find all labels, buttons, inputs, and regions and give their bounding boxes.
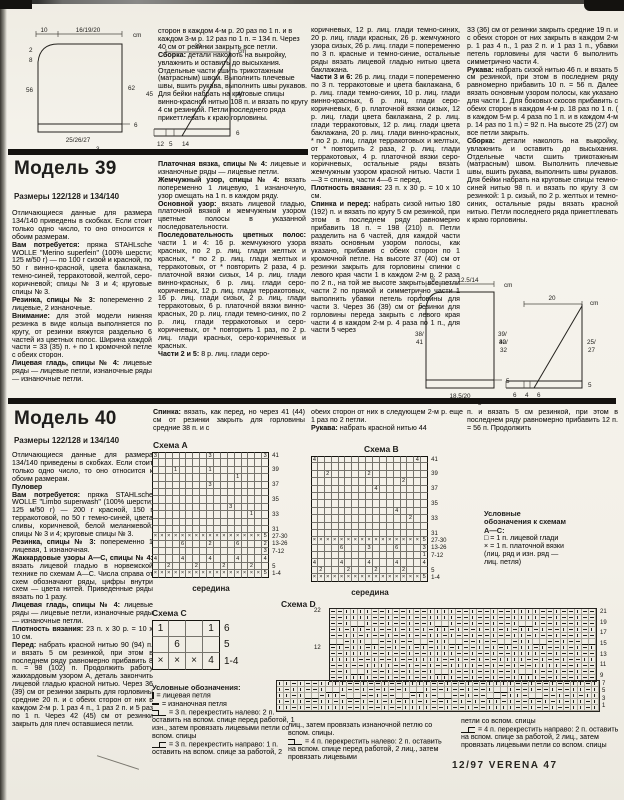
chart-cell bbox=[380, 463, 387, 470]
chart-row: 2 bbox=[311, 478, 447, 485]
chart-cell: × bbox=[339, 574, 346, 581]
row-label: 5 bbox=[602, 688, 605, 694]
chart-cell: 1 bbox=[152, 620, 169, 637]
model40-column-1: Отличающиеся данные для размера 134/140 … bbox=[12, 452, 153, 786]
model40-column-2-intro: Спинка: вязать, как перед, но через 41 (… bbox=[153, 409, 305, 436]
chart-cell bbox=[235, 482, 242, 489]
sym-purl-icon bbox=[152, 703, 159, 705]
chart-row bbox=[152, 489, 288, 496]
chart-cell bbox=[159, 548, 166, 555]
cable-cell bbox=[417, 705, 424, 711]
chart-cell bbox=[262, 511, 269, 518]
chart-cell: × bbox=[318, 574, 325, 581]
chart-cell bbox=[242, 459, 249, 466]
chart-cell bbox=[235, 452, 242, 459]
cable-cell bbox=[592, 705, 599, 711]
chart-cell bbox=[394, 523, 401, 530]
chart-cell bbox=[207, 489, 214, 496]
chart-cell bbox=[242, 467, 249, 474]
chart-cell: × bbox=[166, 533, 173, 540]
row-label bbox=[428, 508, 431, 515]
chart-cell: × bbox=[366, 574, 373, 581]
legend-symbols-col2: = лицевая петля= изнаночная петля= 3 п. … bbox=[152, 692, 304, 756]
chart-cell bbox=[221, 452, 228, 459]
chart-cell bbox=[180, 452, 187, 459]
chart-cell bbox=[228, 563, 235, 570]
chart-cell bbox=[207, 511, 214, 518]
chart-cell bbox=[228, 548, 235, 555]
chart-cell bbox=[414, 567, 421, 574]
chart-cell: × bbox=[169, 653, 186, 670]
paragraph: Жемчужный узор, спицы № 4: вязать попере… bbox=[158, 177, 306, 201]
chart-cell bbox=[262, 482, 269, 489]
paragraph: обеих сторон от них в следующем 2-м р. е… bbox=[311, 409, 463, 425]
chart-cell bbox=[262, 563, 269, 570]
chart-row: 17-12 bbox=[311, 552, 447, 559]
paragraph: п. и вязать 5 см резинкой, при этом в по… bbox=[467, 409, 618, 433]
chart-cell bbox=[401, 471, 408, 478]
chart-cell bbox=[352, 545, 359, 552]
chart-cell bbox=[352, 559, 359, 566]
chart-cell bbox=[235, 511, 242, 518]
cable-cell bbox=[319, 705, 326, 711]
chart-cell: × bbox=[332, 537, 339, 544]
chart-a-caption: середина bbox=[152, 584, 270, 593]
paragraph: × = 1 п. платочной вязки (лиц. ряд и изн… bbox=[484, 543, 568, 567]
chart-cell bbox=[186, 474, 193, 481]
chart-cell: × bbox=[345, 537, 352, 544]
chart-cell bbox=[248, 452, 255, 459]
row-label bbox=[428, 523, 431, 530]
chart-cell bbox=[200, 459, 207, 466]
chart-cell: 2 bbox=[345, 567, 352, 574]
chart-cell bbox=[359, 493, 366, 500]
chart-row: 437 bbox=[311, 486, 447, 493]
chart-cell bbox=[359, 456, 366, 463]
chart-row: ×××41-4 bbox=[152, 653, 238, 670]
chart-cell bbox=[255, 504, 262, 511]
cable-row bbox=[277, 705, 599, 711]
chart-cell bbox=[166, 452, 173, 459]
paragraph: = 4 п. перекрестить направо: 2 п. остави… bbox=[461, 726, 619, 750]
chart-cell: × bbox=[366, 537, 373, 544]
chart-cell bbox=[339, 471, 346, 478]
chart-cell bbox=[414, 545, 421, 552]
chart-cell bbox=[373, 523, 380, 530]
model39-sizes: Размеры 122/128 и 134/140 bbox=[14, 192, 119, 201]
chart-cell bbox=[186, 526, 193, 533]
chart-a-title: Схема A bbox=[153, 440, 188, 450]
paragraph: = 3 п. перекрестить направо: 1 п. остави… bbox=[152, 741, 304, 757]
chart-cell: 2 bbox=[193, 563, 200, 570]
chart-cell bbox=[186, 496, 193, 503]
chart-cell bbox=[345, 478, 352, 485]
chart-row bbox=[152, 519, 288, 526]
chart-cell bbox=[380, 493, 387, 500]
chart-cell bbox=[311, 493, 318, 500]
chart-cell bbox=[311, 530, 318, 537]
chart-cell bbox=[193, 474, 200, 481]
chart-cell bbox=[407, 500, 414, 507]
chart-cell bbox=[186, 459, 193, 466]
paragraph-lead: Основной узор: bbox=[158, 200, 217, 208]
chart-cell bbox=[359, 478, 366, 485]
chart-cell: × bbox=[401, 537, 408, 544]
chart-cell: 3 bbox=[262, 548, 269, 555]
chart-cell bbox=[407, 471, 414, 478]
chart-cell bbox=[207, 548, 214, 555]
chart-cell bbox=[318, 515, 325, 522]
chart-cell bbox=[380, 471, 387, 478]
chart-cell bbox=[180, 548, 187, 555]
chart-cell bbox=[421, 523, 428, 530]
chart-cell bbox=[242, 526, 249, 533]
chart-cell bbox=[380, 552, 387, 559]
chart-cell bbox=[200, 467, 207, 474]
chart-cell bbox=[359, 523, 366, 530]
chart-cell bbox=[262, 496, 269, 503]
row-label: 1-4 bbox=[428, 574, 440, 581]
chart-row bbox=[311, 493, 447, 500]
chart-cell bbox=[352, 456, 359, 463]
chart-d-title: Схема D bbox=[281, 599, 316, 609]
paragraph: Основной узор: вязать лицевой гладью, пл… bbox=[158, 201, 306, 233]
cable-cell bbox=[312, 705, 319, 711]
chart-cell bbox=[166, 467, 173, 474]
chart-cell bbox=[318, 471, 325, 478]
paragraph-lead: Внимание: bbox=[12, 312, 50, 320]
chart-cell: × bbox=[214, 533, 221, 540]
chart-cell bbox=[359, 515, 366, 522]
chart-cell bbox=[262, 519, 269, 526]
chart-cell: 5 bbox=[421, 537, 428, 544]
chart-cell bbox=[373, 456, 380, 463]
dim-label: 38/ bbox=[415, 331, 424, 338]
chart-cell bbox=[214, 489, 221, 496]
chart-cell bbox=[352, 567, 359, 574]
chart-cell: × bbox=[387, 574, 394, 581]
paragraph: Части 3 и 6: 26 р. лиц. глади = попереме… bbox=[311, 74, 460, 185]
row-label: 9 bbox=[600, 673, 607, 679]
chart-cell bbox=[166, 555, 173, 562]
chart-cell bbox=[380, 456, 387, 463]
chart-cell: × bbox=[173, 533, 180, 540]
chart-cell bbox=[407, 523, 414, 530]
chart-row: 35 bbox=[311, 500, 447, 507]
row-label: 41 bbox=[269, 452, 279, 459]
chart-cell bbox=[262, 504, 269, 511]
chart-cell bbox=[180, 526, 187, 533]
chart-cell bbox=[414, 559, 421, 566]
row-label: 13 bbox=[600, 652, 607, 658]
chart-cell bbox=[186, 489, 193, 496]
paragraph-lead: Сборка: bbox=[467, 137, 495, 145]
chart-cell bbox=[248, 548, 255, 555]
page-footer: 12/97 VERENA 47 bbox=[452, 760, 558, 771]
chart-cell: × bbox=[221, 570, 228, 577]
chart-cell: × bbox=[248, 570, 255, 577]
row-label: 6 bbox=[220, 620, 230, 637]
chart-cell bbox=[311, 523, 318, 530]
chart-row: 4 bbox=[311, 508, 447, 515]
chart-d-upper-grid bbox=[330, 609, 596, 681]
chart-cell bbox=[255, 563, 262, 570]
chart-cell bbox=[235, 563, 242, 570]
chart-cell bbox=[401, 508, 408, 515]
chart-cell bbox=[311, 486, 318, 493]
chart-cell bbox=[214, 555, 221, 562]
chart-row: 636313-26 bbox=[311, 545, 447, 552]
chart-cell bbox=[228, 511, 235, 518]
chart-cell bbox=[373, 559, 380, 566]
chart-cell: × bbox=[387, 537, 394, 544]
row-label: 3 bbox=[602, 696, 605, 702]
chart-cell bbox=[242, 474, 249, 481]
chart-cell: × bbox=[325, 537, 332, 544]
chart-cell bbox=[387, 456, 394, 463]
cable-cell bbox=[326, 705, 333, 711]
chart-cell bbox=[352, 508, 359, 515]
dim-label: 5 bbox=[419, 303, 423, 310]
row-label: 11 bbox=[600, 662, 607, 668]
chart-cell bbox=[186, 555, 193, 562]
row-label: 37 bbox=[269, 482, 279, 489]
chart-cell bbox=[248, 474, 255, 481]
chart-cell bbox=[359, 471, 366, 478]
chart-cell bbox=[173, 482, 180, 489]
chart-cell bbox=[221, 474, 228, 481]
model39-column-4: 33 (36) см от резинки закрыть средние 19… bbox=[467, 27, 618, 273]
chart-cell bbox=[221, 459, 228, 466]
chart-cell bbox=[421, 471, 428, 478]
chart-cell bbox=[242, 563, 249, 570]
paragraph-lead: Платочная вязка, спицы № 4: bbox=[158, 161, 267, 168]
chart-cell bbox=[407, 559, 414, 566]
chart-cell bbox=[339, 478, 346, 485]
chart-cell bbox=[421, 567, 428, 574]
section-rule bbox=[8, 149, 308, 155]
dim-label: 32 bbox=[500, 347, 508, 354]
chart-cell bbox=[235, 467, 242, 474]
chart-cell bbox=[387, 508, 394, 515]
chart-cell: 1 bbox=[421, 552, 428, 559]
chart-cell bbox=[214, 504, 221, 511]
chart-row: 22225 bbox=[311, 567, 447, 574]
chart-cell bbox=[421, 500, 428, 507]
chart-cell bbox=[401, 486, 408, 493]
chart-cell bbox=[366, 463, 373, 470]
dim-label: 2 bbox=[29, 47, 33, 54]
row-label: 1 bbox=[602, 703, 605, 709]
chart-cell bbox=[339, 500, 346, 507]
chart-cell bbox=[193, 555, 200, 562]
chart-cell bbox=[255, 459, 262, 466]
paragraph: = 4 п. перекрестить налево: 2 п. оставит… bbox=[288, 738, 450, 762]
chart-cell: 5 bbox=[421, 574, 428, 581]
chart-cell bbox=[166, 474, 173, 481]
chart-cell bbox=[359, 552, 366, 559]
chart-cell bbox=[318, 552, 325, 559]
chart-cell bbox=[235, 489, 242, 496]
row-label bbox=[269, 504, 272, 511]
chart-cell bbox=[200, 511, 207, 518]
chart-cell bbox=[414, 515, 421, 522]
paragraph-lead: Рукава: bbox=[311, 424, 338, 432]
chart-cell: × bbox=[380, 574, 387, 581]
cable-cell bbox=[466, 705, 473, 711]
row-label: 5 bbox=[220, 637, 230, 654]
chart-cell bbox=[173, 563, 180, 570]
chart-cell bbox=[203, 637, 220, 654]
chart-cell bbox=[414, 471, 421, 478]
chart-cell bbox=[325, 545, 332, 552]
chart-cell bbox=[193, 482, 200, 489]
chart-cell bbox=[193, 489, 200, 496]
cable-cell bbox=[508, 705, 515, 711]
paragraph: Спинка: вязать, как перед, но через 41 (… bbox=[153, 409, 305, 433]
chart-cell bbox=[401, 559, 408, 566]
row-label bbox=[269, 555, 272, 562]
chart-cell bbox=[255, 511, 262, 518]
chart-cell bbox=[200, 519, 207, 526]
chart-cell: × bbox=[318, 537, 325, 544]
cable-cell bbox=[543, 705, 550, 711]
chart-row: 22225 bbox=[152, 563, 288, 570]
chart-cell bbox=[152, 489, 159, 496]
paragraph: Лицевая гладь, спицы № 4: лицевые ряды —… bbox=[12, 602, 153, 626]
chart-cell: 4 bbox=[311, 456, 318, 463]
model39-column-1: Отличающиеся данные для размера 134/140 … bbox=[12, 210, 152, 396]
chart-cell: × bbox=[159, 533, 166, 540]
paragraph-lead: Пуловер bbox=[12, 483, 42, 491]
chart-cell: 4 bbox=[207, 555, 214, 562]
legend-abc-title: Условные обозначения к схемам А—С: bbox=[484, 510, 568, 535]
row-label bbox=[269, 489, 272, 496]
chart-cell bbox=[352, 478, 359, 485]
chart-cell bbox=[401, 545, 408, 552]
chart-cell bbox=[248, 482, 255, 489]
chart-cell bbox=[200, 452, 207, 459]
chart-cell bbox=[214, 474, 221, 481]
paragraph: Перед: набрать красной нитью 90 (94) п. … bbox=[12, 642, 153, 729]
row-label: 7-12 bbox=[428, 552, 443, 559]
chart-cell bbox=[248, 555, 255, 562]
chart-cell bbox=[180, 474, 187, 481]
chart-row: 2239 bbox=[311, 471, 447, 478]
chart-cell bbox=[407, 486, 414, 493]
chart-cell bbox=[325, 559, 332, 566]
chart-cell bbox=[214, 459, 221, 466]
chart-c-grid: 11665×××41-4 bbox=[152, 620, 238, 670]
chart-cell bbox=[318, 456, 325, 463]
paragraph-lead: Вам потребуется: bbox=[12, 491, 80, 499]
chart-cell bbox=[242, 511, 249, 518]
chart-cell bbox=[318, 545, 325, 552]
chart-row: 33341 bbox=[152, 452, 288, 459]
chart-cell bbox=[332, 515, 339, 522]
dim-unit: cm bbox=[590, 300, 598, 307]
chart-cell bbox=[255, 496, 262, 503]
chart-cell bbox=[311, 478, 318, 485]
cable-cell bbox=[340, 705, 347, 711]
chart-cell bbox=[186, 511, 193, 518]
dim-label: 41 bbox=[416, 339, 424, 346]
paragraph-lead: Резинка, спицы № 3: bbox=[12, 296, 95, 304]
chart-cell bbox=[414, 523, 421, 530]
chart-cell bbox=[387, 530, 394, 537]
chart-cell bbox=[380, 500, 387, 507]
chart-cell: 6 bbox=[180, 541, 187, 548]
chart-row: 65 bbox=[152, 637, 238, 654]
chart-cell: 4 bbox=[235, 555, 242, 562]
chart-cell: 2 bbox=[318, 567, 325, 574]
chart-cell bbox=[387, 471, 394, 478]
paragraph: Сборка: детали наколоть на выкройку, увл… bbox=[467, 138, 618, 225]
chart-cell: 3 bbox=[207, 482, 214, 489]
chart-cell bbox=[387, 515, 394, 522]
chart-row: 116 bbox=[152, 620, 238, 637]
paragraph: Рукава: набрать красной нитью 44 bbox=[311, 425, 463, 433]
chart-cell bbox=[401, 500, 408, 507]
chart-cell bbox=[221, 511, 228, 518]
paragraph: Вам потребуется: пряжа STAHLsche WOLLE "… bbox=[12, 492, 153, 539]
chart-cell: 1 bbox=[203, 620, 220, 637]
cable-cell bbox=[529, 705, 536, 711]
chart-cell bbox=[359, 530, 366, 537]
row-label: 1-4 bbox=[269, 570, 281, 577]
chart-cell bbox=[380, 530, 387, 537]
chart-b-title: Схема B bbox=[364, 444, 399, 454]
paragraph: 33 (36) см от резинки закрыть средние 19… bbox=[467, 27, 618, 67]
chart-cell bbox=[387, 523, 394, 530]
chart-cell bbox=[373, 530, 380, 537]
chart-cell bbox=[318, 559, 325, 566]
legend-abc-items: □ = 1 п. лицевой глади× = 1 п. платочной… bbox=[484, 535, 568, 567]
chart-row: 44444 bbox=[311, 559, 447, 566]
chart-cell bbox=[186, 620, 203, 637]
cable-cell bbox=[354, 705, 361, 711]
model39-title: Модель 39 bbox=[14, 158, 117, 180]
chart-cell: × bbox=[373, 537, 380, 544]
chart-cell bbox=[345, 523, 352, 530]
chart-cell bbox=[159, 467, 166, 474]
row-label: 39 bbox=[428, 471, 438, 478]
chart-cell bbox=[166, 489, 173, 496]
chart-cell bbox=[228, 489, 235, 496]
chart-cell: 2 bbox=[401, 567, 408, 574]
chart-cell bbox=[214, 519, 221, 526]
chart-cell bbox=[394, 530, 401, 537]
dim-label: 12.5/14 bbox=[457, 277, 479, 284]
chart-cell bbox=[311, 500, 318, 507]
chart-row: 37-12 bbox=[152, 548, 288, 555]
paragraph: Отличающиеся данные для размера 134/140 … bbox=[12, 210, 152, 242]
chart-cell bbox=[166, 504, 173, 511]
chart-cell: × bbox=[200, 570, 207, 577]
chart-row: ××××××××××××××××51-4 bbox=[152, 570, 288, 577]
chart-cell bbox=[166, 511, 173, 518]
chart-cell bbox=[311, 463, 318, 470]
legend-symbols: Условные обозначения: = лицевая петля= и… bbox=[152, 684, 304, 757]
chart-cell bbox=[359, 545, 366, 552]
chart-cell: × bbox=[414, 537, 421, 544]
chart-cell bbox=[228, 519, 235, 526]
chart-cell bbox=[173, 504, 180, 511]
dim-label: 25/26/27 bbox=[66, 137, 91, 144]
sym-c4r-icon bbox=[461, 726, 475, 733]
cable-cell bbox=[333, 705, 340, 711]
chart-cell: × bbox=[359, 574, 366, 581]
